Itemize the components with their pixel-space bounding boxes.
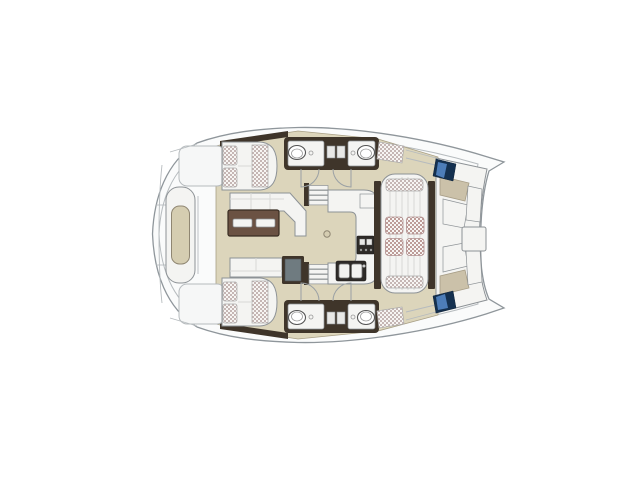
bathroom-window-3 bbox=[327, 312, 335, 324]
berth-upper-pillow-1 bbox=[223, 146, 237, 165]
salon-table-leaf-2 bbox=[256, 219, 275, 227]
cockpit-bench-top bbox=[466, 186, 482, 222]
lounge-cushion-3 bbox=[386, 239, 404, 256]
cockpit bbox=[436, 158, 487, 313]
foredeck-hatch-lower bbox=[179, 284, 225, 324]
cabin-upper bbox=[222, 142, 277, 190]
lounge-band-top bbox=[386, 179, 423, 191]
cabin-lower bbox=[222, 278, 277, 326]
bathroom-window-1 bbox=[327, 146, 335, 158]
salon-table-leaf-1 bbox=[233, 219, 252, 227]
galley-sink-basin-1 bbox=[339, 264, 350, 278]
lounge-band-bottom bbox=[386, 276, 423, 288]
cockpit-table bbox=[462, 227, 486, 251]
lounge-cushion-4 bbox=[407, 239, 425, 256]
berth-upper-pillow-2 bbox=[223, 168, 237, 187]
table-post bbox=[324, 231, 330, 237]
sink-upper-right bbox=[358, 146, 375, 160]
lounge-cushion-2 bbox=[407, 217, 425, 234]
berth-lower-pillow-1 bbox=[223, 282, 237, 301]
bathroom-window-4 bbox=[337, 312, 345, 324]
lounge-rail-left bbox=[374, 181, 381, 289]
sink-lower-right bbox=[358, 311, 375, 325]
berth-upper-blanket-band bbox=[252, 145, 268, 187]
tv-screen bbox=[285, 259, 301, 281]
cockpit-bench-bottom bbox=[466, 249, 482, 285]
foredeck-hatch-upper bbox=[179, 146, 225, 186]
center-lounge bbox=[374, 174, 435, 293]
bathroom-window-2 bbox=[337, 146, 345, 158]
catamaran-floorplan-drawing bbox=[0, 0, 640, 480]
sink-upper-left bbox=[289, 146, 306, 160]
galley-oven bbox=[360, 194, 376, 208]
companionway-stairs-upper bbox=[304, 183, 328, 206]
berth-lower-pillow-2 bbox=[223, 304, 237, 323]
tread-pad-upper bbox=[377, 142, 404, 163]
lounge-rail-right bbox=[428, 181, 435, 289]
companionway-stairs-lower bbox=[304, 262, 328, 285]
galley-sink-basin-2 bbox=[352, 264, 363, 278]
sink-lower-left bbox=[289, 311, 306, 325]
lounge-cushion-1 bbox=[386, 217, 404, 234]
screenshot-canvas bbox=[0, 0, 640, 480]
tread-pad-lower bbox=[377, 307, 404, 328]
foredeck-lounge-pad-center bbox=[172, 206, 190, 264]
berth-lower-blanket-band bbox=[252, 281, 268, 323]
